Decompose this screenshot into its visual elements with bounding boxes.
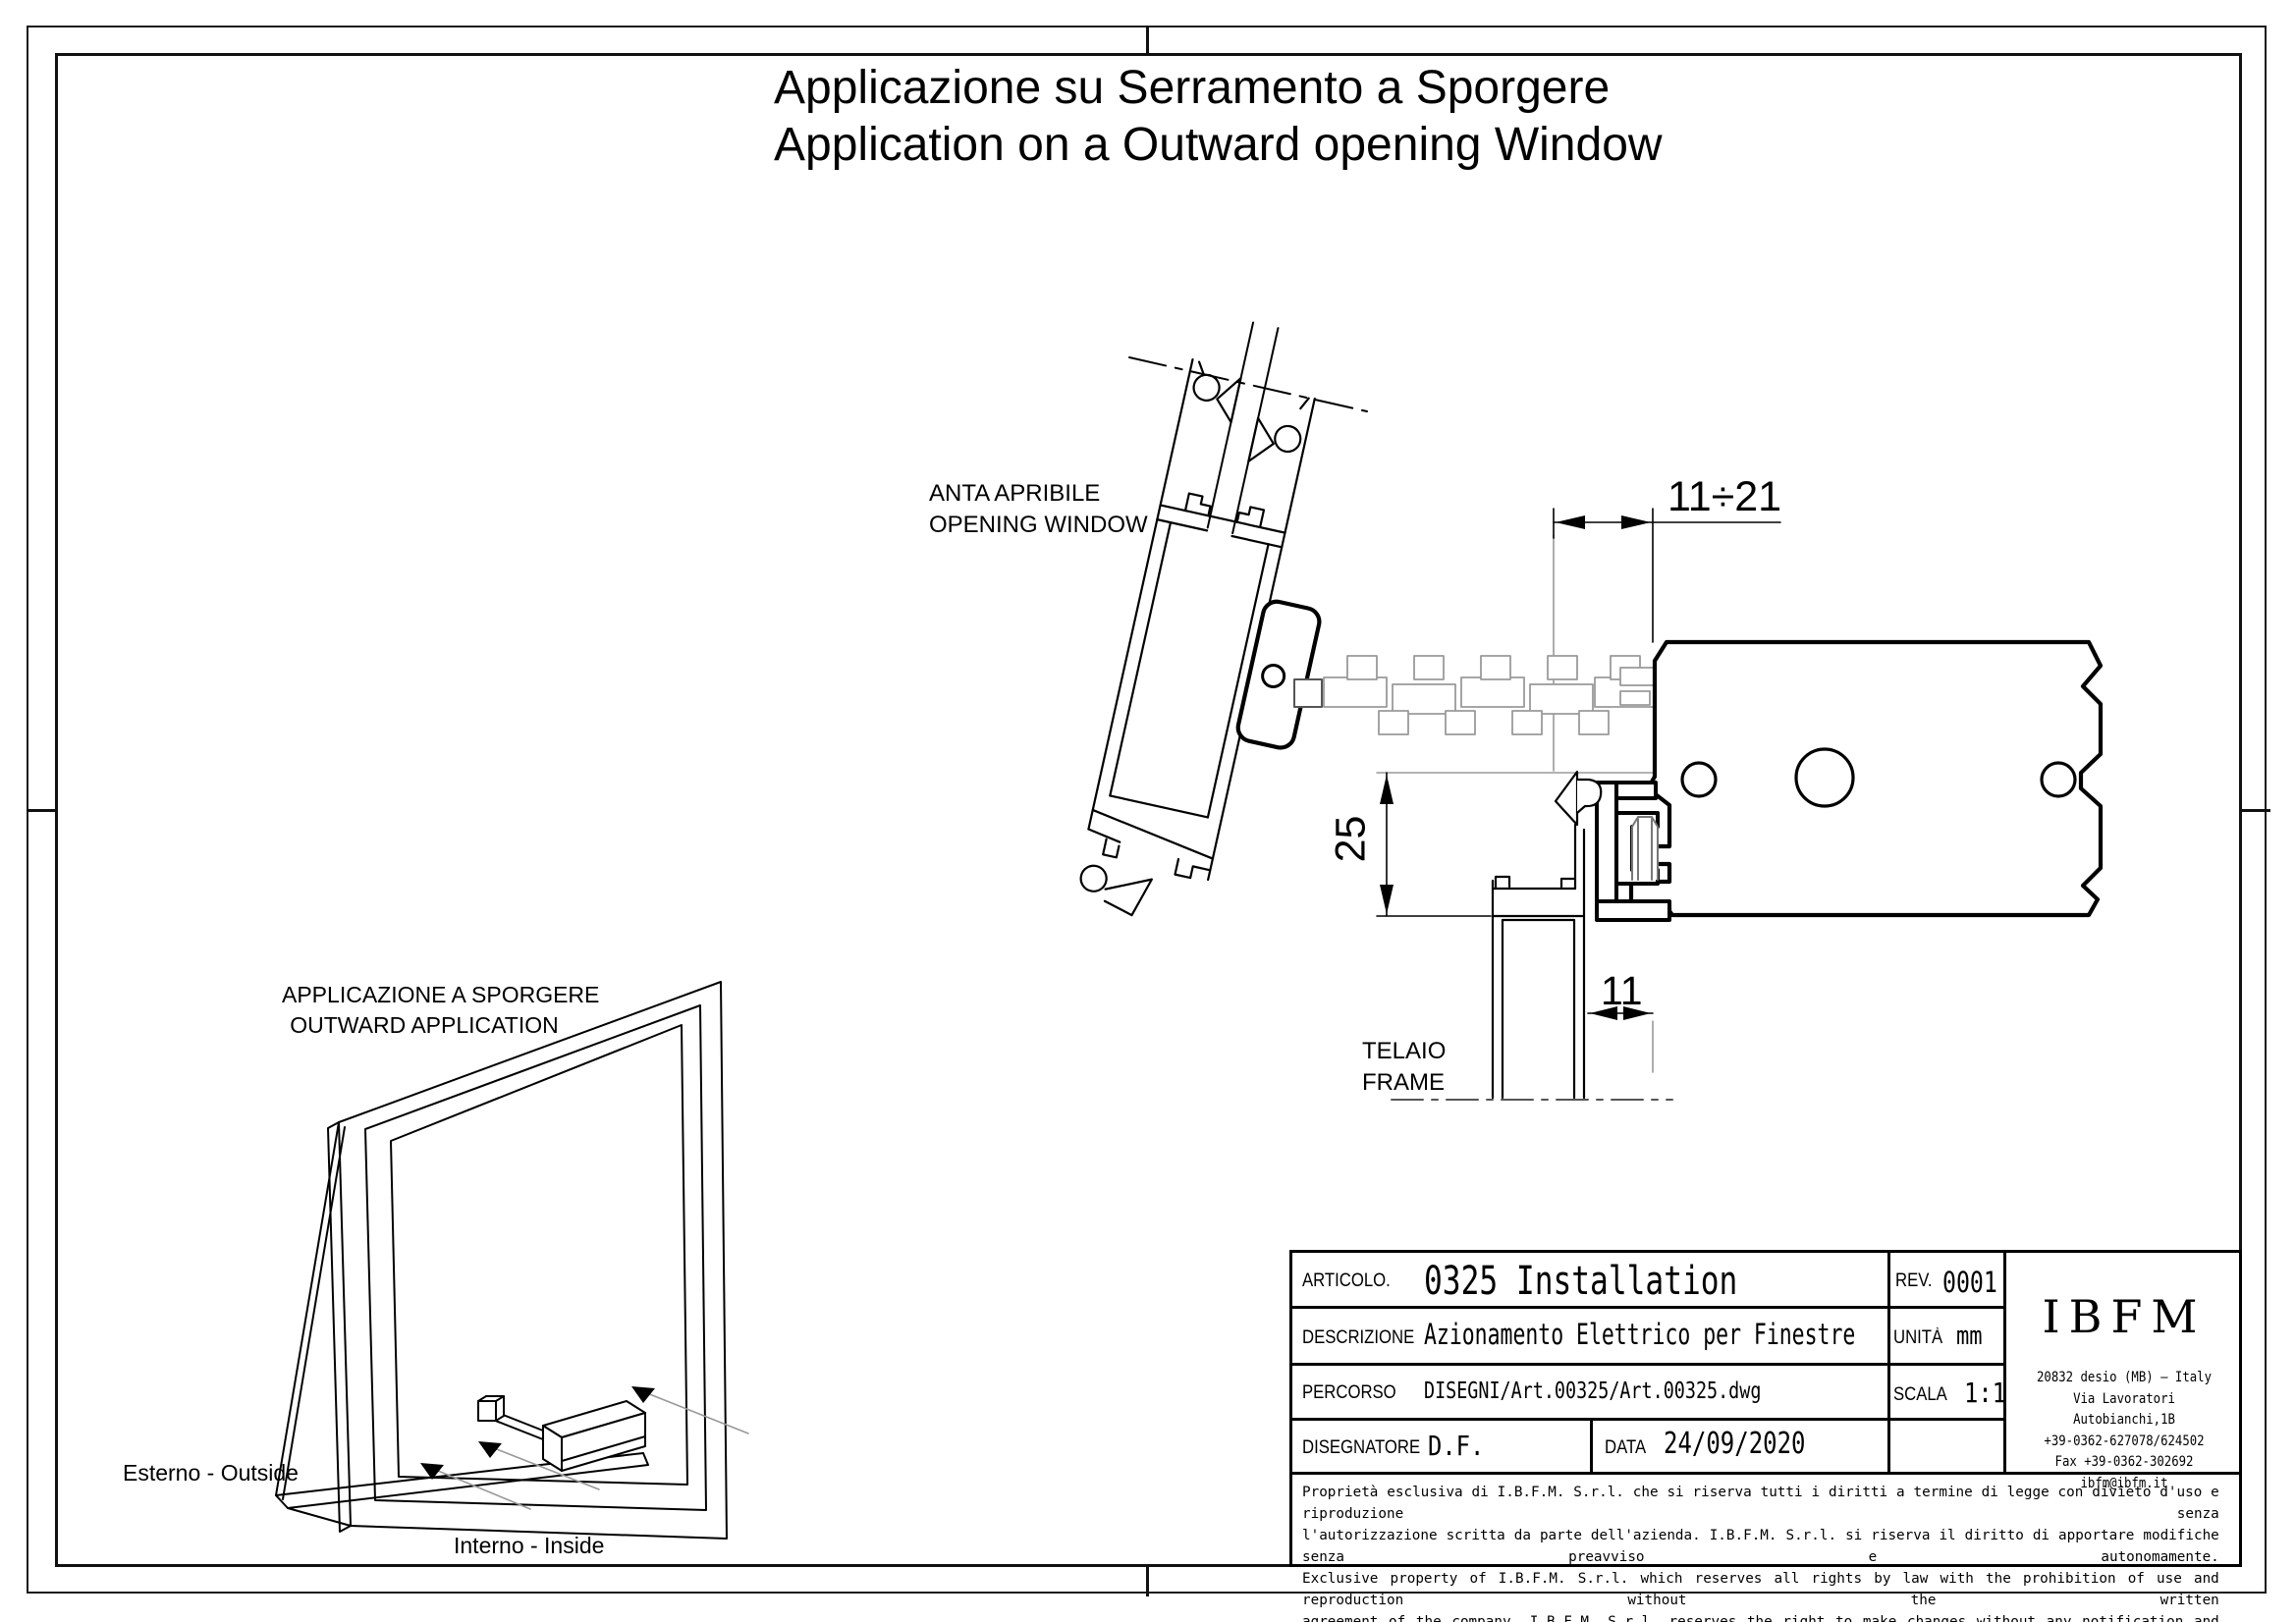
sash-label-line2: OPENING WINDOW [929,512,1148,539]
address-line: Fax +39-0362-302692 [2020,1452,2227,1474]
company-address: 20832 desio (MB) – Italy Via Lavoratori … [2006,1368,2242,1494]
address-line: Via Lavoratori Autobianchi,1B [2020,1389,2227,1432]
isometric-view [276,982,748,1539]
chain-end-link [1294,679,1322,707]
percorso-label: PERCORSO [1302,1382,1409,1404]
section-view [1072,311,2101,1100]
chain [1324,656,1658,734]
interior-label: Interno - Inside [454,1533,604,1559]
set-screw [1632,817,1658,880]
scala-label: SCALA [1893,1384,1954,1406]
legal-line: l'autorizzazione scritta da parte dell'a… [1302,1525,2219,1568]
frame-left-face [328,1122,351,1532]
actuator-3d [478,1396,645,1471]
open-sash [276,1122,648,1526]
address-line: 20832 desio (MB) – Italy [2020,1368,2227,1389]
frame-profile [1493,772,1601,1098]
title-block: ARTICOLO. 0325 Installation REV. 0001 DE… [1289,1250,2242,1567]
dim-gap-text: 11÷21 [1667,473,1781,521]
disegnatore-value: D.F. [1428,1430,1494,1462]
iso-caption-line2: OUTWARD APPLICATION [282,1012,567,1039]
articolo-label: ARTICOLO. [1302,1271,1402,1292]
unita-value: mm [1956,1322,1987,1351]
rev-label: REV. [1895,1271,1938,1292]
dim-height-text: 25 [1327,816,1375,863]
unita-label: UNITÀ [1893,1327,1949,1349]
iso-caption-line1: APPLICAZIONE A SPORGERE [282,982,567,1008]
sash-bracket [1235,599,1322,750]
dim-gap-lines [1554,509,1780,642]
legal-line: Exclusive property of I.B.F.M. S.r.l. wh… [1302,1568,2219,1611]
descrizione-label: DESCRIZIONE [1302,1327,1430,1349]
dim-offset-text: 11 [1601,968,1643,1014]
centerline [1129,357,1367,411]
sash-label-line1: ANTA APRIBILE [929,480,1100,508]
company-logo-text: IBFM [2006,1290,2242,1343]
legal-line: Proprietà esclusiva di I.B.F.M. S.r.l. c… [1302,1482,2219,1525]
drawing-sheet: Applicazione su Serramento a Sporgere Ap… [0,0,2296,1622]
disegnatore-label: DISEGNATORE [1302,1437,1437,1459]
actuator-body [1631,642,2101,915]
percorso-value: DISEGNI/Art.00325/Art.00325.dwg [1424,1379,1845,1404]
data-label: DATA [1605,1437,1652,1459]
legal-notice: Proprietà esclusiva di I.B.F.M. S.r.l. c… [1302,1482,2233,1622]
articolo-value: 0325 Installation [1424,1259,1826,1304]
exterior-label: Esterno - Outside [123,1460,299,1487]
legal-line: agreement of the company. I.B.F.M. S.r.l… [1302,1611,2219,1622]
frame-outer [339,982,727,1539]
data-value: 24/09/2020 [1664,1427,1841,1461]
address-line: +39-0362-627078/624502 [2020,1432,2227,1453]
frame-label-line2: FRAME [1362,1069,1445,1097]
rev-value: 0001 [1942,1266,2011,1299]
frame-label-line1: TELAIO [1362,1038,1446,1065]
dim-height-lines [1377,773,1491,916]
